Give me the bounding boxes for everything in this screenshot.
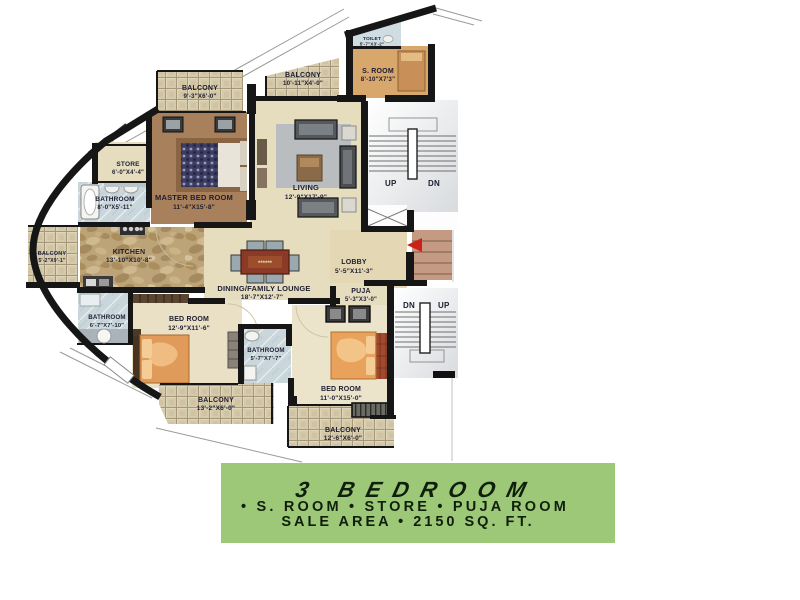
svg-text:UP: UP [438, 301, 450, 310]
svg-text:5'-2"X9'-1": 5'-2"X9'-1" [38, 258, 66, 264]
svg-text:11'-4"X15'-8": 11'-4"X15'-8" [173, 204, 215, 211]
svg-text:BALCONY: BALCONY [325, 427, 361, 434]
svg-text:6'-0"X4'-4": 6'-0"X4'-4" [112, 170, 144, 176]
svg-text:BATHROOM: BATHROOM [247, 347, 285, 354]
svg-text:DN: DN [428, 179, 440, 188]
svg-text:18'-7"X12'-7": 18'-7"X12'-7" [241, 294, 283, 301]
svg-text:MASTER BED ROOM: MASTER BED ROOM [155, 193, 233, 202]
svg-text:DINING/FAMILY LOUNGE: DINING/FAMILY LOUNGE [217, 284, 310, 293]
svg-text:DN: DN [403, 301, 415, 310]
svg-text:6'-7"X7'-10": 6'-7"X7'-10" [90, 323, 125, 329]
svg-text:12'-6"X6'-0": 12'-6"X6'-0" [324, 435, 362, 442]
svg-text:BATHROOM: BATHROOM [88, 314, 126, 321]
svg-text:BALCONY: BALCONY [198, 397, 234, 404]
svg-text:BALCONY: BALCONY [182, 85, 218, 92]
svg-text:11'-0"X15'-0": 11'-0"X15'-0" [320, 395, 362, 402]
svg-text:5'-3"X3'-0": 5'-3"X3'-0" [345, 297, 377, 303]
svg-text:******: ****** [258, 261, 273, 267]
svg-text:LIVING: LIVING [293, 183, 319, 192]
svg-text:12'-9"X17'-9": 12'-9"X17'-9" [285, 194, 327, 201]
svg-text:KITCHEN: KITCHEN [113, 249, 146, 256]
svg-text:BED ROOM: BED ROOM [321, 386, 361, 393]
svg-text:10'-11"X4'-0": 10'-11"X4'-0" [283, 80, 323, 87]
svg-text:• S. ROOM • STORE • PUJA ROOM: • S. ROOM • STORE • PUJA ROOM [241, 499, 569, 515]
svg-text:9'-3"X6'-0": 9'-3"X6'-0" [183, 93, 216, 100]
svg-text:S. ROOM: S. ROOM [362, 68, 394, 75]
svg-text:5'-7"X3'-2": 5'-7"X3'-2" [360, 42, 385, 47]
svg-text:BED ROOM: BED ROOM [169, 316, 209, 323]
svg-text:5'-5"X11'-3": 5'-5"X11'-3" [335, 268, 373, 275]
svg-text:SALE AREA • 2150 SQ. FT.: SALE AREA • 2150 SQ. FT. [281, 514, 534, 530]
svg-text:BATHROOM: BATHROOM [95, 196, 134, 203]
svg-text:8'-10"X7'3": 8'-10"X7'3" [361, 76, 395, 83]
svg-text:13'-10"X10'-8": 13'-10"X10'-8" [106, 257, 152, 264]
svg-text:8'-0"X5'-11": 8'-0"X5'-11" [97, 205, 132, 211]
svg-text:5'-7"X7'-7": 5'-7"X7'-7" [250, 356, 281, 362]
svg-text:12'-9"X11'-6": 12'-9"X11'-6" [168, 325, 210, 332]
svg-text:STORE: STORE [116, 161, 140, 168]
svg-text:PUJA: PUJA [351, 288, 370, 295]
svg-text:13'-2"X6'-0": 13'-2"X6'-0" [197, 405, 235, 412]
svg-text:BALCONY: BALCONY [285, 72, 321, 79]
svg-text:UP: UP [385, 179, 397, 188]
svg-text:BALCONY: BALCONY [38, 251, 67, 257]
svg-text:LOBBY: LOBBY [341, 259, 367, 266]
